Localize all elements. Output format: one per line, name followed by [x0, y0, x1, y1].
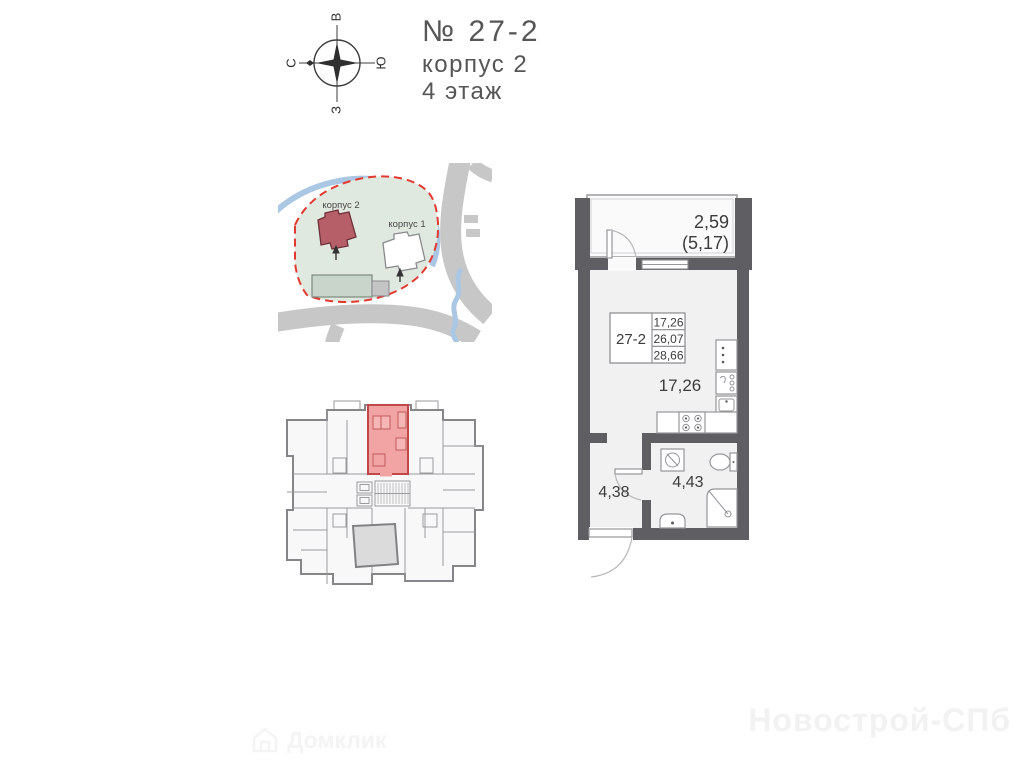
living-area-value: 17,26 [653, 316, 683, 330]
compass-label-bottom: З [328, 106, 343, 114]
stove [679, 412, 705, 433]
apartment-plan-drawing: 2,59 (5,17) [570, 185, 755, 590]
compass: В Ю З С [283, 7, 391, 124]
apartment-plan: 2,59 (5,17) [570, 185, 755, 595]
window [642, 260, 688, 269]
portal-watermark-text: Домклик [287, 727, 386, 754]
balcony [334, 401, 360, 410]
highlighted-unit [368, 405, 408, 477]
compass-rose: В Ю З С [283, 7, 391, 119]
compass-label-top: В [328, 13, 343, 22]
toilet [710, 453, 737, 471]
site-plan: корпус 2 корпус 1 [278, 163, 492, 347]
compass-north-marker-icon [306, 60, 314, 66]
brand-watermark: Новострой-СПб [748, 702, 1011, 739]
building-floor-plan [277, 398, 492, 598]
living-room-label: 17,26 [659, 376, 702, 395]
building-floor-plan-drawing [277, 398, 492, 593]
road-pocket [466, 229, 480, 237]
site-plan-map: корпус 2 корпус 1 [278, 163, 492, 342]
compass-label-left: С [283, 58, 298, 67]
road-pocket [464, 215, 478, 223]
shower [707, 489, 737, 527]
building-1-label: корпус 1 [388, 219, 425, 230]
unit-info-table: 27-2 17,26 26,07 28,66 [610, 313, 685, 363]
bathroom-label: 4,43 [672, 474, 703, 491]
fridge [716, 340, 737, 370]
house-icon [250, 726, 280, 754]
building-name: корпус 2 [422, 51, 541, 78]
washing-machine [661, 449, 684, 471]
entrance-door [589, 527, 633, 577]
balcony-area-label: 2,59 [694, 212, 729, 232]
floor-number: 4 этаж [422, 78, 541, 105]
balcony-area-full-label: (5,17) [682, 233, 729, 253]
hall-label: 4,38 [598, 484, 629, 501]
title-block: № 27-2 корпус 2 4 этаж [422, 16, 541, 105]
bathroom-sink [660, 514, 685, 528]
unit-number: № 27-2 [422, 16, 541, 48]
floor-plan-page: В Ю З С № 27-2 корпус 2 4 этаж [0, 0, 1015, 768]
portal-watermark: Домклик [250, 726, 386, 754]
unit-label: 27-2 [616, 331, 646, 348]
total-area-value: 28,66 [653, 349, 683, 363]
compass-star-icon [316, 42, 358, 84]
area-no-balcony-value: 26,07 [653, 332, 683, 346]
compass-label-right: Ю [373, 56, 388, 69]
building-2-label: корпус 2 [322, 200, 359, 211]
balcony [416, 401, 438, 410]
light-well [353, 524, 398, 567]
